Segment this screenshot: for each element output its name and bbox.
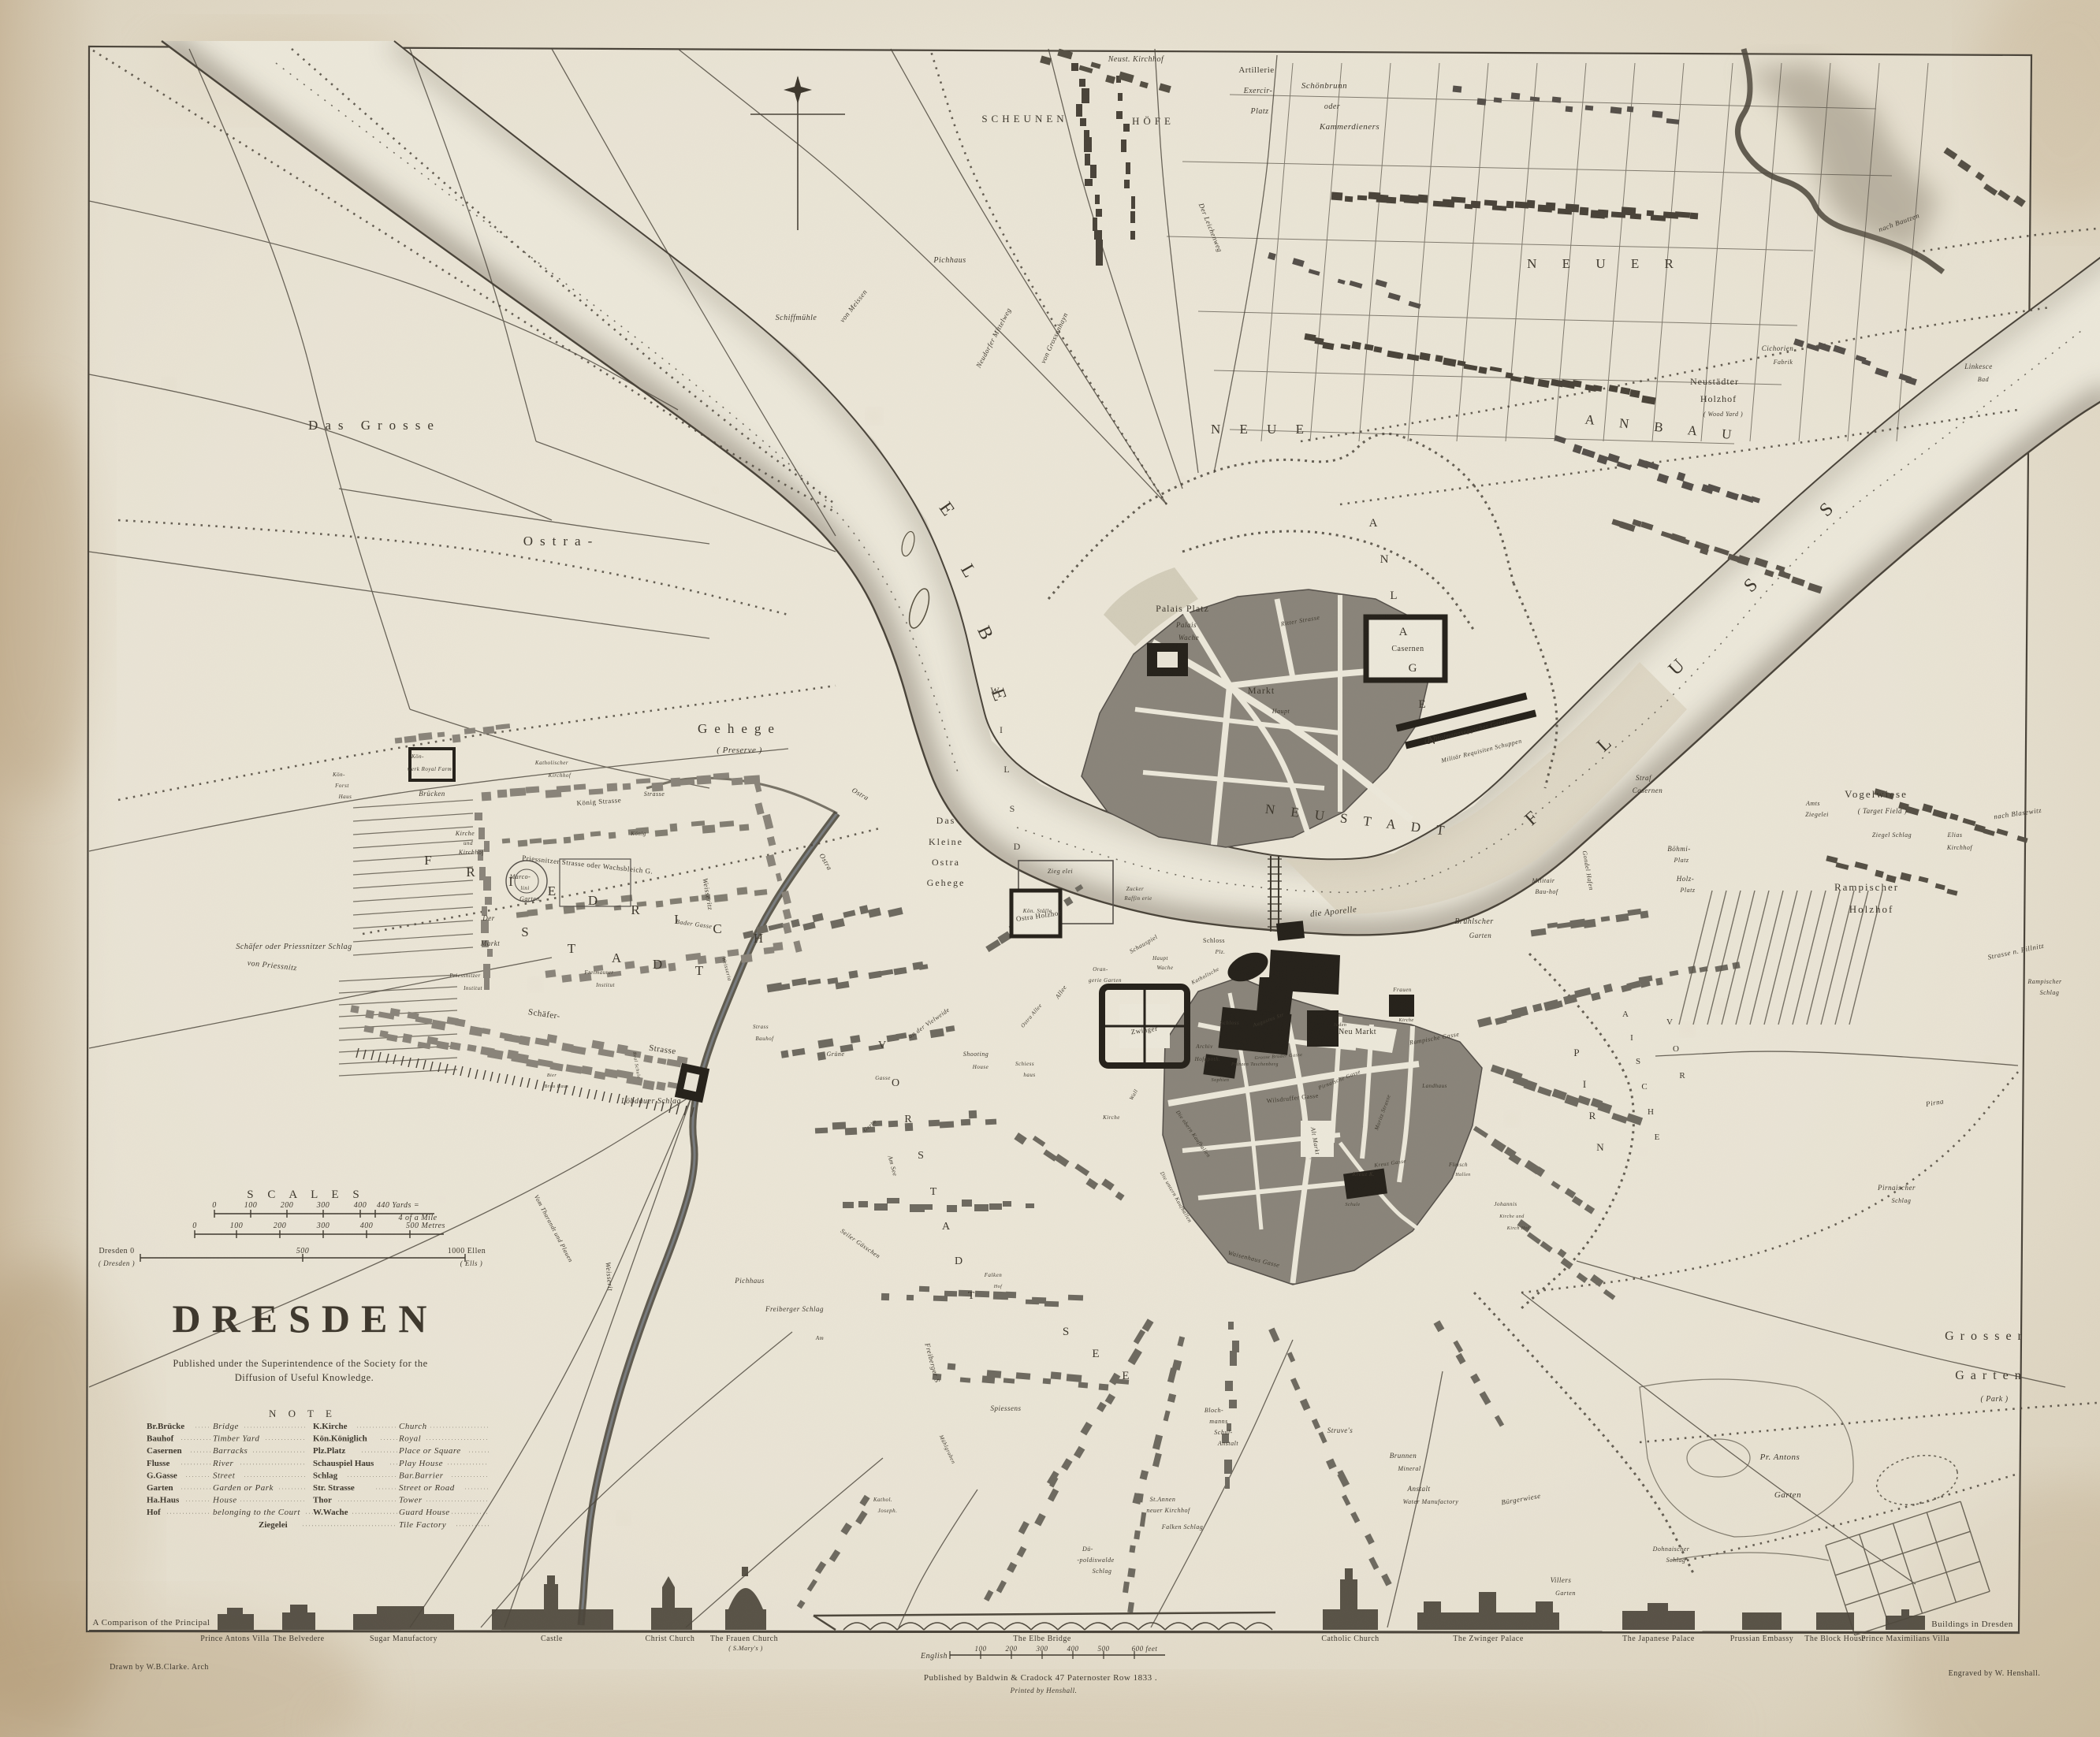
svg-text:Pichhaus: Pichhaus [734, 1277, 765, 1285]
svg-text:Schlag: Schlag [2040, 989, 2060, 996]
svg-text:Buildings in Dresden: Buildings in Dresden [1931, 1620, 2013, 1629]
svg-text:Raffin erie: Raffin erie [1123, 895, 1152, 902]
svg-text:F: F [424, 853, 431, 868]
svg-text:Platz: Platz [1249, 107, 1268, 116]
svg-text:Schauspiel Haus: Schauspiel Haus [313, 1459, 374, 1468]
svg-text:Mineral: Mineral [1397, 1465, 1421, 1472]
svg-text:Struve's: Struve's [1327, 1426, 1353, 1434]
svg-text:Bier: Bier [547, 1073, 557, 1078]
svg-text:Sophien: Sophien [1212, 1078, 1230, 1083]
svg-text:Zucker: Zucker [1126, 886, 1144, 892]
svg-text:0: 0 [192, 1222, 197, 1230]
svg-text:Neu Markt: Neu Markt [1339, 1028, 1376, 1036]
svg-text:S: S [1010, 803, 1015, 814]
svg-text:G: G [1409, 662, 1417, 675]
svg-text:H: H [1648, 1107, 1654, 1117]
svg-text:T: T [568, 941, 576, 956]
svg-text:Holzhof: Holzhof [1700, 393, 1737, 404]
svg-text:R: R [904, 1114, 912, 1125]
svg-text:Neustädter: Neustädter [1690, 376, 1739, 387]
svg-text:Dresden 0: Dresden 0 [99, 1247, 134, 1255]
svg-text:DRESDEN: DRESDEN [173, 1296, 438, 1341]
svg-text:Barracks: Barracks [213, 1446, 248, 1456]
svg-text:Ha.Haus: Ha.Haus [147, 1496, 180, 1505]
svg-text:600 feet: 600 feet [1132, 1645, 1158, 1653]
svg-text:Johannis: Johannis [1494, 1201, 1517, 1207]
svg-text:E: E [1092, 1348, 1099, 1360]
svg-text:Artillerie: Artillerie [1238, 65, 1274, 75]
svg-text:A: A [1622, 1010, 1629, 1019]
svg-text:300: 300 [1036, 1645, 1048, 1653]
svg-text:A: A [612, 950, 622, 965]
svg-text:Shooting: Shooting [963, 1051, 989, 1058]
svg-text:C: C [713, 921, 721, 936]
svg-text:Bauhof: Bauhof [147, 1434, 174, 1444]
svg-text:V: V [878, 1040, 886, 1051]
svg-text:Kreuz K.: Kreuz K. [1352, 1171, 1376, 1177]
svg-text:River: River [212, 1459, 234, 1468]
svg-text:Garten: Garten [1955, 1369, 2027, 1382]
svg-text:C: C [1641, 1082, 1647, 1092]
svg-text:Fabrik: Fabrik [1773, 359, 1793, 366]
svg-text:R: R [631, 902, 640, 917]
svg-text:English: English [920, 1652, 948, 1661]
svg-text:Zieg elei: Zieg elei [1048, 868, 1073, 875]
svg-text:Schiess: Schiess [1015, 1061, 1034, 1067]
svg-text:Br.Brücke: Br.Brücke [147, 1422, 184, 1431]
svg-text:1000 Ellen: 1000 Ellen [448, 1247, 486, 1255]
svg-text:Garden or Park: Garden or Park [213, 1483, 274, 1493]
svg-text:A: A [942, 1221, 951, 1233]
svg-text:G.Gasse: G.Gasse [147, 1471, 177, 1480]
svg-text:Spiessens: Spiessens [991, 1404, 1022, 1412]
svg-text:Kathol.: Kathol. [873, 1497, 892, 1503]
svg-text:Street or Road: Street or Road [399, 1483, 455, 1493]
svg-text:House: House [212, 1496, 237, 1505]
svg-text:Schäfer oder Priessnitzer Schl: Schäfer oder Priessnitzer Schlag [236, 943, 352, 951]
svg-text:N: N [1380, 553, 1389, 566]
svg-text:Tile Factory: Tile Factory [399, 1520, 446, 1530]
svg-text:Plz.: Plz. [1215, 949, 1226, 955]
svg-text:lini: lini [520, 885, 529, 891]
svg-text:Kön-: Kön- [411, 753, 424, 760]
svg-text:Church: Church [399, 1422, 427, 1431]
svg-text:Published under the Superinten: Published under the Superintendence of t… [173, 1358, 427, 1369]
svg-text:Hof: Hof [993, 1284, 1003, 1289]
svg-text:Christ Church: Christ Church [646, 1635, 695, 1643]
svg-text:N E U E: N E U E [1211, 422, 1312, 437]
svg-text:The Belvedere: The Belvedere [273, 1635, 324, 1643]
svg-text:D: D [588, 893, 598, 908]
svg-text:Am: Am [815, 1335, 824, 1341]
svg-text:Platz: Platz [1674, 857, 1689, 864]
svg-text:Ziegelei: Ziegelei [1805, 811, 1829, 818]
svg-text:I: I [1583, 1078, 1586, 1090]
svg-text:House: House [972, 1064, 989, 1070]
svg-text:Schul-: Schul- [1214, 1429, 1232, 1436]
svg-text:H: H [754, 931, 763, 946]
svg-text:Hallen: Hallen [1454, 1173, 1470, 1177]
svg-text:Holzhof: Holzhof [1849, 903, 1894, 915]
svg-text:R: R [1589, 1110, 1596, 1121]
svg-text:Kleine: Kleine [929, 836, 963, 847]
svg-text:Kirche: Kirche [1398, 1018, 1413, 1023]
svg-text:Böhmi-: Böhmi- [1667, 845, 1691, 853]
svg-text:( Preserve ): ( Preserve ) [717, 746, 762, 755]
svg-text:200: 200 [1006, 1645, 1018, 1653]
svg-text:Haus: Haus [338, 794, 352, 800]
svg-text:E: E [1418, 698, 1425, 711]
svg-text:L: L [1390, 590, 1397, 602]
svg-text:Palais Platz: Palais Platz [1156, 603, 1209, 614]
svg-text:L: L [1003, 764, 1009, 775]
svg-text:I: I [1000, 724, 1003, 735]
svg-text:Straf: Straf [1636, 774, 1652, 782]
svg-text:( Ells ): ( Ells ) [460, 1259, 483, 1267]
svg-text:Kirche: Kirche [1102, 1114, 1120, 1121]
svg-text:Oran-: Oran- [1093, 966, 1108, 973]
svg-text:Ziegel Schlag: Ziegel Schlag [1872, 831, 1912, 839]
svg-text:Brunnen: Brunnen [1390, 1452, 1417, 1460]
svg-text:Prinzen Taschenberg: Prinzen Taschenberg [1231, 1062, 1279, 1067]
svg-text:Vogelwiese: Vogelwiese [1845, 788, 1908, 800]
svg-text:Villers: Villers [1551, 1576, 1572, 1584]
svg-text:R: R [466, 865, 475, 880]
svg-text:Kirche: Kirche [455, 830, 475, 837]
svg-text:Engraved by W. Henshall.: Engraved by W. Henshall. [1949, 1669, 2041, 1678]
svg-text:Joseph.: Joseph. [878, 1508, 898, 1514]
svg-text:W: W [990, 685, 1000, 696]
svg-text:Haupt: Haupt [1272, 708, 1290, 715]
svg-text:Markt: Markt [1248, 685, 1275, 696]
svg-text:-poldiswalde: -poldiswalde [1077, 1557, 1114, 1564]
svg-text:T: T [695, 963, 704, 978]
svg-text:Fleisch: Fleisch [1448, 1162, 1468, 1168]
svg-text:100: 100 [244, 1201, 258, 1210]
svg-text:Casernen: Casernen [1633, 787, 1663, 794]
svg-text:Printed by Henshall.: Printed by Henshall. [1010, 1687, 1078, 1694]
svg-text:E: E [1122, 1370, 1129, 1382]
svg-text:Haupt: Haupt [1152, 955, 1169, 961]
svg-text:Bauhof: Bauhof [755, 1036, 774, 1042]
svg-text:E: E [548, 883, 556, 898]
svg-text:D: D [1014, 841, 1021, 852]
svg-text:Grosser: Grosser [1945, 1330, 2028, 1343]
svg-text:Casernen: Casernen [147, 1446, 182, 1456]
svg-text:100: 100 [975, 1645, 987, 1653]
svg-text:Kirchhof: Kirchhof [458, 849, 485, 856]
svg-text:Brücken: Brücken [419, 790, 445, 798]
svg-text:Schlag: Schlag [1093, 1568, 1112, 1575]
svg-text:Castle: Castle [541, 1635, 563, 1643]
svg-text:Schiffmühle: Schiffmühle [776, 314, 817, 322]
svg-text:300: 300 [316, 1201, 330, 1210]
svg-text:Grüne: Grüne [827, 1051, 845, 1058]
svg-text:Schlag: Schlag [1892, 1197, 1912, 1204]
svg-text:T: T [930, 1186, 937, 1198]
svg-text:The Zwinger Palace: The Zwinger Palace [1453, 1635, 1524, 1643]
svg-text:Ostra-: Ostra- [523, 534, 599, 549]
svg-text:I: I [1630, 1033, 1633, 1043]
svg-text:Thor: Thor [313, 1496, 332, 1505]
svg-text:Royal: Royal [398, 1434, 421, 1444]
svg-text:Dü-: Dü- [1082, 1545, 1093, 1553]
svg-text:Prince Maximilians Villa: Prince Maximilians Villa [1861, 1635, 1949, 1643]
svg-text:Published by Baldwin & Cradock: Published by Baldwin & Cradock 47 Patern… [924, 1673, 1157, 1683]
svg-text:Sugar Manufactory: Sugar Manufactory [370, 1635, 438, 1643]
svg-text:Priessnitzer: Priessnitzer [449, 973, 480, 979]
svg-text:SCHEUNEN: SCHEUNEN [981, 113, 1067, 125]
svg-text:König: König [630, 831, 646, 837]
svg-text:Bad: Bad [1978, 376, 1990, 383]
svg-text:Holz-: Holz- [1676, 875, 1695, 883]
svg-text:Guard House: Guard House [399, 1508, 450, 1517]
svg-text:gerie Garten: gerie Garten [1089, 977, 1122, 984]
svg-text:Amts: Amts [1805, 800, 1820, 807]
svg-text:Schlag: Schlag [313, 1471, 338, 1480]
svg-text:500: 500 [296, 1247, 310, 1255]
svg-text:Kirchhof: Kirchhof [1946, 844, 1973, 851]
svg-text:Casernen: Casernen [1391, 645, 1424, 653]
svg-text:Kirche und: Kirche und [1499, 1214, 1525, 1219]
svg-text:Street: Street [213, 1471, 236, 1480]
svg-text:Ostra: Ostra [932, 857, 960, 868]
svg-text:V: V [1666, 1017, 1673, 1027]
svg-text:Gehege: Gehege [698, 721, 781, 736]
svg-text:O: O [1673, 1044, 1679, 1054]
svg-text:Prussian Embassy: Prussian Embassy [1730, 1635, 1794, 1643]
svg-text:Kön. Ställe: Kön. Ställe [1022, 908, 1052, 914]
svg-text:Freimaurer: Freimaurer [583, 969, 613, 976]
svg-text:Katholischer: Katholischer [534, 760, 568, 766]
svg-text:Dohnaischer: Dohnaischer [1652, 1545, 1690, 1553]
svg-text:Wache: Wache [1178, 634, 1199, 642]
svg-text:Löbdauer Schlag: Löbdauer Schlag [620, 1097, 681, 1106]
svg-text:100: 100 [230, 1222, 244, 1230]
svg-text:T: T [968, 1290, 975, 1302]
svg-text:I: I [508, 874, 513, 889]
svg-text:440 Yards =: 440 Yards = [377, 1201, 419, 1210]
svg-text:Schönbrunn: Schönbrunn [1301, 81, 1347, 91]
svg-text:A: A [1399, 626, 1408, 638]
svg-text:Garten: Garten [1555, 1590, 1576, 1597]
svg-text:Drawn by W.B.Clarke. Arch: Drawn by W.B.Clarke. Arch [110, 1663, 209, 1672]
svg-text:Water Manufactory: Water Manufactory [1403, 1498, 1459, 1505]
svg-text:400: 400 [1067, 1645, 1079, 1653]
svg-text:Jüden: Jüden [1334, 1023, 1347, 1028]
svg-text:( Wood Yard ): ( Wood Yard ) [1703, 411, 1743, 418]
svg-text:Platz: Platz [1680, 887, 1696, 894]
svg-text:Institut: Institut [595, 982, 615, 988]
svg-text:Schloss: Schloss [1220, 1020, 1240, 1026]
svg-text:Institut: Institut [463, 985, 482, 991]
svg-text:E: E [1655, 1133, 1660, 1142]
svg-text:Pichhaus: Pichhaus [933, 256, 966, 265]
svg-text:500 Metres: 500 Metres [406, 1222, 445, 1230]
svg-text:Play House: Play House [398, 1459, 443, 1468]
svg-text:Tower: Tower [399, 1496, 423, 1505]
svg-text:200: 200 [281, 1201, 294, 1210]
svg-text:Frauen: Frauen [1392, 987, 1412, 993]
svg-text:400: 400 [354, 1201, 367, 1210]
svg-text:Catholic Church: Catholic Church [1321, 1635, 1379, 1643]
svg-text:( Target Field ): ( Target Field ) [1858, 807, 1908, 815]
svg-text:Ziegelei: Ziegelei [259, 1520, 288, 1530]
svg-text:Bau-hof: Bau-hof [1535, 888, 1559, 895]
svg-text:Garten: Garten [147, 1483, 173, 1493]
svg-text:Pirnaischer: Pirnaischer [1877, 1184, 1916, 1192]
svg-text:St.Annen: St.Annen [1150, 1496, 1176, 1503]
svg-text:neuer Kirchhof: neuer Kirchhof [1146, 1507, 1191, 1514]
svg-text:Timber Yard: Timber Yard [213, 1434, 259, 1444]
svg-text:300: 300 [316, 1222, 330, 1230]
svg-text:Wache: Wache [1157, 965, 1174, 971]
svg-text:Anstalt: Anstalt [1406, 1485, 1430, 1493]
svg-text:N O T E: N O T E [269, 1408, 337, 1419]
svg-text:( Park ): ( Park ) [1980, 1395, 2008, 1404]
svg-text:200: 200 [274, 1222, 287, 1230]
svg-text:Bloch-: Bloch- [1205, 1407, 1223, 1414]
svg-text:Pr. Antons: Pr. Antons [1759, 1452, 1800, 1462]
svg-text:Flusse: Flusse [147, 1459, 169, 1468]
svg-text:manns: manns [1209, 1418, 1227, 1425]
svg-text:Der: Der [482, 914, 495, 922]
svg-text:The Block House: The Block House [1804, 1635, 1866, 1643]
svg-text:Das Grosse: Das Grosse [308, 418, 441, 433]
svg-text:Strasse: Strasse [644, 790, 665, 798]
svg-text:Schloss: Schloss [1203, 937, 1225, 944]
svg-text:S C A L E S: S C A L E S [247, 1188, 364, 1201]
svg-text:Brühlscher: Brühlscher [1454, 917, 1493, 926]
svg-text:Palais: Palais [1175, 621, 1197, 629]
svg-text:Gehege: Gehege [927, 877, 966, 888]
svg-text:Rampischer: Rampischer [2027, 978, 2062, 985]
svg-text:Falken Schlag: Falken Schlag [1161, 1523, 1203, 1531]
svg-text:( Dresden ): ( Dresden ) [99, 1259, 135, 1267]
svg-text:Exercir-: Exercir- [1243, 87, 1273, 95]
svg-text:Archiv: Archiv [1195, 1043, 1213, 1050]
svg-text:S: S [521, 924, 528, 939]
svg-text:( S.Mary's ): ( S.Mary's ) [728, 1645, 762, 1652]
svg-text:Kirchhof: Kirchhof [548, 772, 572, 779]
svg-text:Linkesce: Linkesce [1964, 363, 1993, 370]
svg-text:Bridge: Bridge [213, 1422, 239, 1431]
svg-text:500: 500 [1098, 1645, 1110, 1653]
svg-text:Kön-: Kön- [332, 772, 345, 778]
svg-text:oder: oder [1324, 102, 1340, 111]
svg-text:Kirch Hof: Kirch Hof [1506, 1226, 1530, 1231]
svg-text:Landhaus: Landhaus [1421, 1083, 1447, 1089]
svg-text:Bar.Barrier: Bar.Barrier [399, 1471, 444, 1480]
svg-text:Garten: Garten [1774, 1490, 1801, 1500]
svg-text:Prince Antons Villa: Prince Antons Villa [200, 1635, 270, 1643]
svg-text:N E U E R: N E U E R [1527, 256, 1685, 271]
svg-text:0: 0 [212, 1201, 217, 1210]
svg-text:Neust. Kirchhof: Neust. Kirchhof [1108, 55, 1164, 64]
svg-text:Cichorien: Cichorien [1762, 344, 1794, 352]
svg-text:Anstalt: Anstalt [1217, 1440, 1238, 1447]
svg-text:The Elbe Bridge: The Elbe Bridge [1013, 1635, 1071, 1643]
svg-text:Str. Strasse: Str. Strasse [313, 1483, 355, 1493]
svg-text:Forst: Forst [334, 783, 349, 789]
svg-text:und: und [464, 840, 473, 846]
svg-text:Hof: Hof [147, 1508, 161, 1517]
svg-text:haus: haus [1023, 1072, 1035, 1078]
svg-text:Strass: Strass [753, 1024, 769, 1030]
svg-text:400: 400 [360, 1222, 374, 1230]
svg-text:Markt: Markt [480, 939, 501, 947]
svg-text:P: P [1573, 1047, 1579, 1058]
svg-text:W.Wache: W.Wache [313, 1508, 348, 1517]
svg-text:belonging to the Court: belonging to the Court [213, 1508, 300, 1517]
svg-text:N: N [1596, 1141, 1604, 1153]
svg-text:HÖFE: HÖFE [1132, 115, 1175, 127]
svg-text:Schule: Schule [1346, 1203, 1361, 1207]
svg-text:Elias: Elias [1947, 831, 1963, 839]
svg-text:Hofapoth.: Hofapoth. [1194, 1056, 1221, 1062]
svg-text:I: I [674, 912, 679, 927]
svg-text:Gasse: Gasse [875, 1075, 891, 1081]
svg-text:A Comparison of the Principal: A Comparison of the Principal [93, 1618, 210, 1627]
svg-text:Diffusion of Useful Knowledge.: Diffusion of Useful Knowledge. [235, 1372, 374, 1383]
svg-text:Schlag: Schlag [1666, 1557, 1686, 1564]
svg-text:Militair: Militair [1532, 877, 1555, 884]
svg-text:Brau Haus: Brau Haus [545, 1084, 569, 1089]
svg-text:Garten: Garten [1469, 932, 1492, 939]
svg-text:Kammerdieners: Kammerdieners [1319, 122, 1380, 132]
svg-text:The Frauen Church: The Frauen Church [710, 1635, 778, 1643]
svg-text:D: D [955, 1255, 963, 1267]
svg-text:werk Royal Farm: werk Royal Farm [408, 766, 452, 772]
svg-text:S: S [1636, 1057, 1640, 1066]
svg-text:D: D [653, 957, 662, 972]
svg-text:Das: Das [936, 815, 956, 826]
svg-text:Place or Square: Place or Square [398, 1446, 461, 1456]
svg-text:A: A [1369, 517, 1378, 530]
svg-text:Kön.Königlich: Kön.Königlich [313, 1434, 367, 1444]
svg-text:R: R [1679, 1071, 1685, 1081]
svg-text:Plz.Platz: Plz.Platz [313, 1446, 345, 1456]
svg-text:The Japanese Palace: The Japanese Palace [1622, 1635, 1695, 1643]
svg-text:Falken: Falken [984, 1272, 1002, 1278]
svg-text:S: S [918, 1150, 924, 1162]
svg-text:S: S [1063, 1326, 1069, 1338]
svg-text:O: O [892, 1077, 899, 1089]
svg-text:Garten: Garten [519, 895, 540, 902]
svg-text:Freiberger Schlag: Freiberger Schlag [765, 1305, 824, 1313]
svg-text:Rampischer: Rampischer [1834, 881, 1899, 893]
svg-text:K.Kirche: K.Kirche [313, 1422, 348, 1431]
